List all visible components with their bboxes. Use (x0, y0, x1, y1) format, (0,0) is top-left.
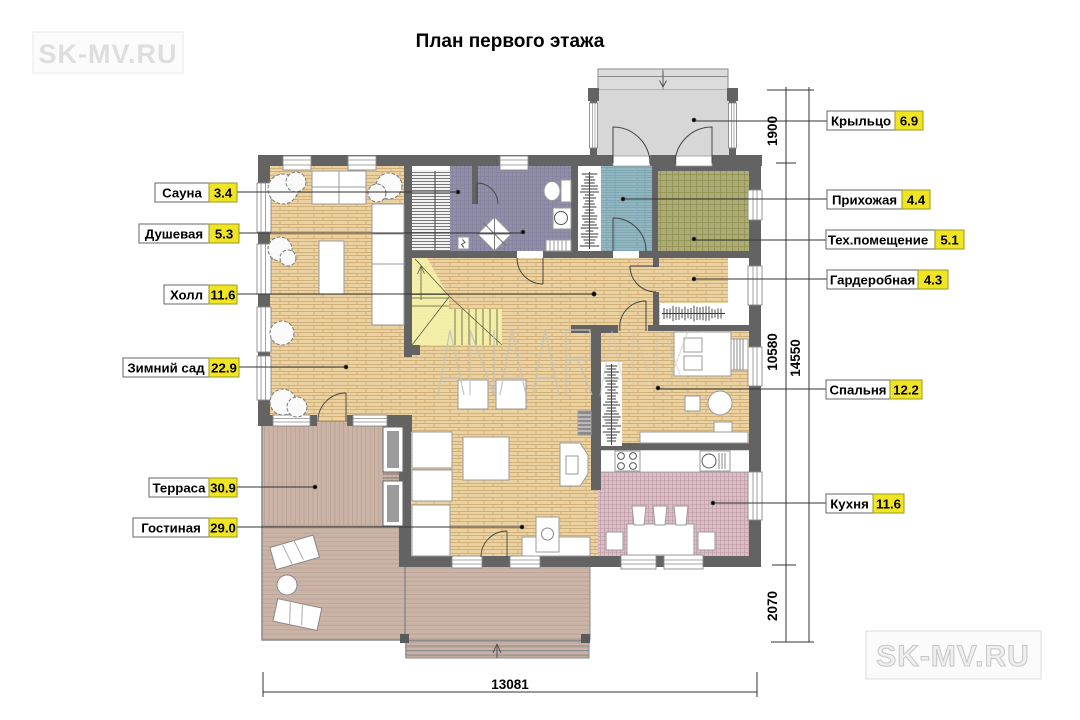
svg-text:1900: 1900 (765, 116, 780, 146)
svg-text:Зимний сад: Зимний сад (127, 361, 205, 376)
svg-text:14550: 14550 (788, 339, 803, 377)
svg-text:22.9: 22.9 (211, 361, 237, 376)
svg-text:Холл: Холл (170, 288, 203, 303)
svg-text:Крыльцо: Крыльцо (831, 114, 891, 129)
svg-text:Терраса: Терраса (152, 481, 206, 496)
svg-text:Душевая: Душевая (145, 227, 203, 242)
svg-text:Спальня: Спальня (830, 383, 887, 398)
svg-text:29.0: 29.0 (210, 521, 236, 536)
svg-text:11.6: 11.6 (211, 288, 236, 303)
svg-text:Кухня: Кухня (830, 497, 869, 512)
svg-text:Гардеробная: Гардеробная (830, 273, 915, 288)
svg-text:13081: 13081 (491, 677, 529, 692)
svg-text:6.9: 6.9 (900, 114, 918, 129)
svg-text:3.4: 3.4 (214, 186, 233, 201)
svg-text:11.6: 11.6 (876, 497, 901, 512)
svg-text:5.3: 5.3 (215, 227, 233, 242)
svg-text:Сауна: Сауна (162, 186, 202, 201)
svg-text:4.3: 4.3 (924, 273, 942, 288)
svg-text:SK-MV.RU: SK-MV.RU (876, 640, 1030, 673)
svg-text:2070: 2070 (765, 591, 780, 621)
svg-text:12.2: 12.2 (893, 383, 919, 398)
svg-text:SK-MV.RU: SK-MV.RU (38, 39, 177, 69)
svg-text:План первого этажа: План первого этажа (416, 31, 605, 52)
svg-text:Прихожая: Прихожая (832, 193, 897, 208)
svg-text:4.4: 4.4 (907, 193, 926, 208)
svg-text:10580: 10580 (765, 333, 780, 371)
svg-text:Тех.помещение: Тех.помещение (828, 233, 928, 248)
svg-text:30.9: 30.9 (210, 481, 236, 496)
svg-text:Гостиная: Гостиная (141, 521, 201, 536)
svg-text:5.1: 5.1 (940, 233, 958, 248)
